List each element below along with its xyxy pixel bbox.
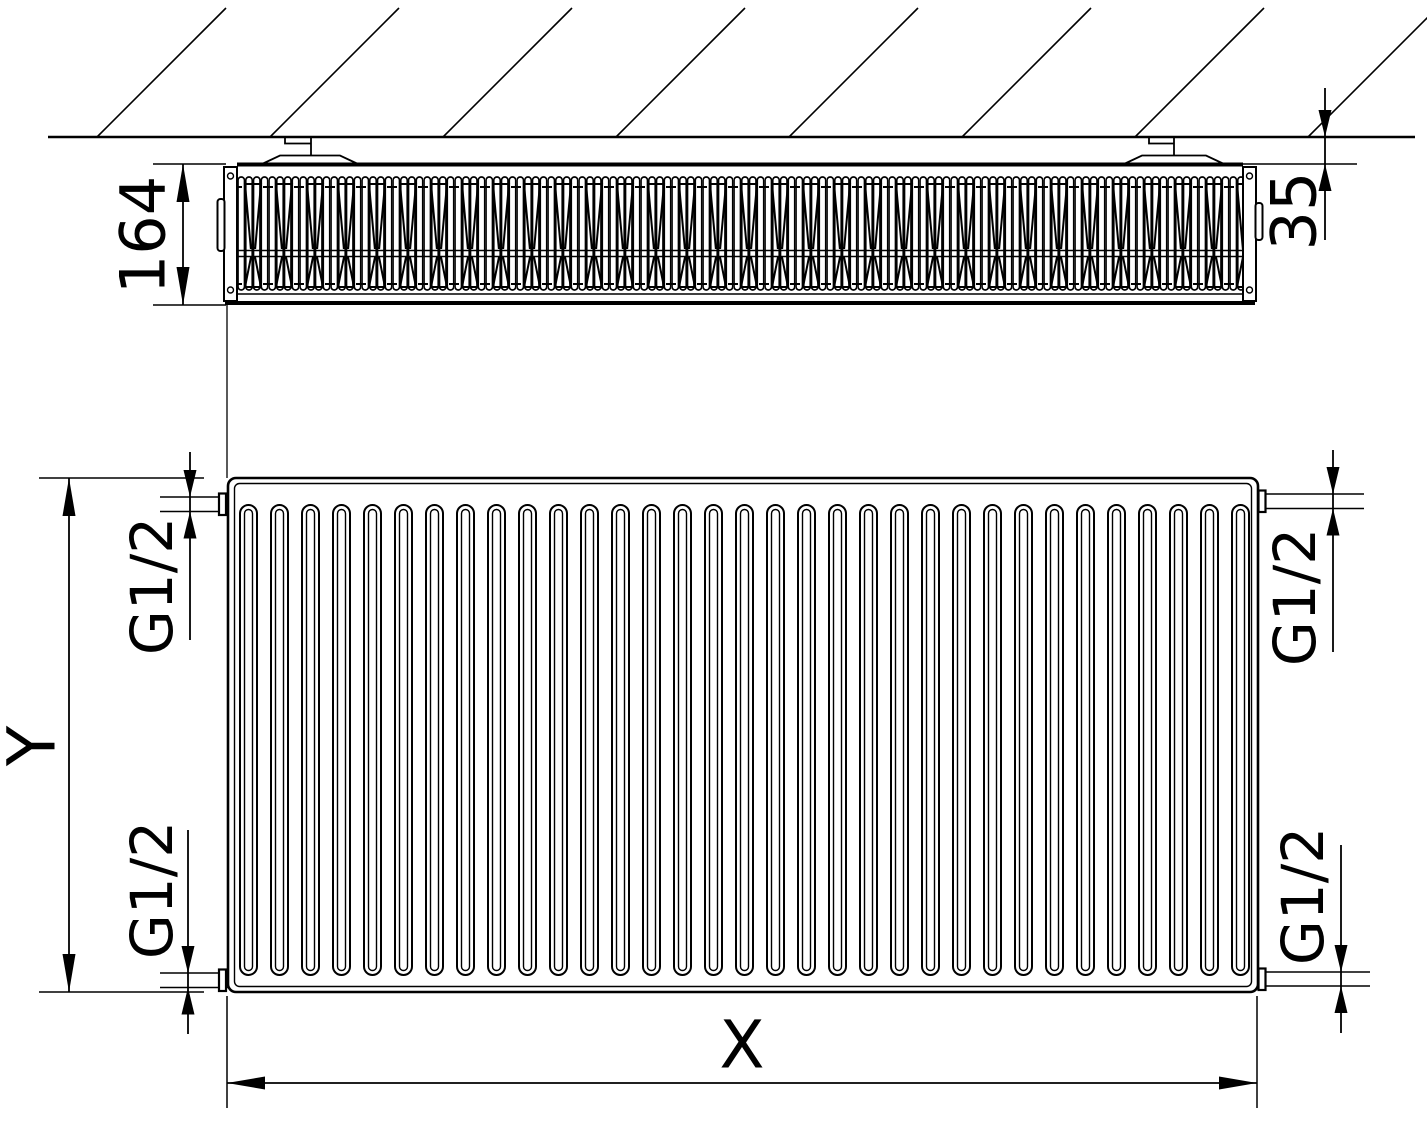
end-cap-right bbox=[1243, 167, 1256, 301]
arrowhead bbox=[227, 1077, 265, 1090]
arrowhead bbox=[63, 954, 76, 992]
dim-width-label: X bbox=[719, 1007, 764, 1084]
radiator-top-view bbox=[218, 165, 1263, 304]
wall-hatch-line bbox=[962, 8, 1091, 137]
wall-hatch-line bbox=[616, 8, 745, 137]
arrowhead bbox=[1327, 467, 1340, 494]
drawing-canvas: 164 35 G1/2 G1/2 bbox=[0, 0, 1427, 1121]
connection-stub-bottom-left bbox=[219, 970, 226, 992]
wall-bracket-right bbox=[1124, 137, 1224, 164]
dim-height-label: Y bbox=[0, 725, 71, 767]
dim-wall-clearance-label: 35 bbox=[1258, 172, 1331, 251]
wall-hatch-line bbox=[789, 8, 918, 137]
end-cap-screw bbox=[228, 173, 234, 179]
end-cap-screw bbox=[228, 287, 234, 293]
end-cap-screw bbox=[1247, 173, 1253, 179]
dim-width: X bbox=[227, 996, 1257, 1108]
front-panel-outline bbox=[228, 478, 1258, 992]
dim-connection-top-right: G1/2 bbox=[1258, 450, 1364, 666]
end-cap-left bbox=[224, 167, 237, 301]
arrowhead bbox=[63, 478, 76, 516]
dim-connection-bottom-left: G1/2 bbox=[118, 821, 228, 1034]
connection-label-bottom-left: G1/2 bbox=[118, 821, 186, 959]
connection-tab-left bbox=[218, 199, 225, 251]
radiator-front-view bbox=[228, 478, 1258, 992]
wall-hatch-line bbox=[97, 8, 226, 137]
end-cap-screw bbox=[1247, 287, 1253, 293]
dim-connection-top-left: G1/2 bbox=[118, 452, 228, 655]
wall-bracket-left bbox=[262, 137, 358, 164]
radiator-technical-drawing: 164 35 G1/2 G1/2 bbox=[0, 0, 1427, 1121]
wall-hatching bbox=[97, 8, 1427, 137]
wall-hatch-line bbox=[1135, 8, 1264, 137]
dim-depth: 164 bbox=[107, 164, 227, 305]
arrowhead bbox=[1335, 986, 1348, 1013]
arrowhead bbox=[184, 470, 197, 497]
dim-depth-label: 164 bbox=[107, 176, 180, 294]
dim-connection-bottom-right: G1/2 bbox=[1258, 827, 1370, 1033]
connection-label-top-left: G1/2 bbox=[118, 517, 186, 655]
connection-stub-top-left bbox=[219, 494, 226, 516]
connection-label-bottom-right: G1/2 bbox=[1269, 827, 1337, 965]
connection-stub-bottom-right bbox=[1259, 969, 1266, 991]
wall-hatch-line bbox=[270, 8, 399, 137]
wall-hatch-line bbox=[443, 8, 572, 137]
arrowhead bbox=[1219, 1077, 1257, 1090]
convector-fin-band bbox=[237, 171, 1243, 299]
connection-stub-top-right bbox=[1259, 491, 1266, 513]
connection-label-top-right: G1/2 bbox=[1261, 528, 1329, 666]
